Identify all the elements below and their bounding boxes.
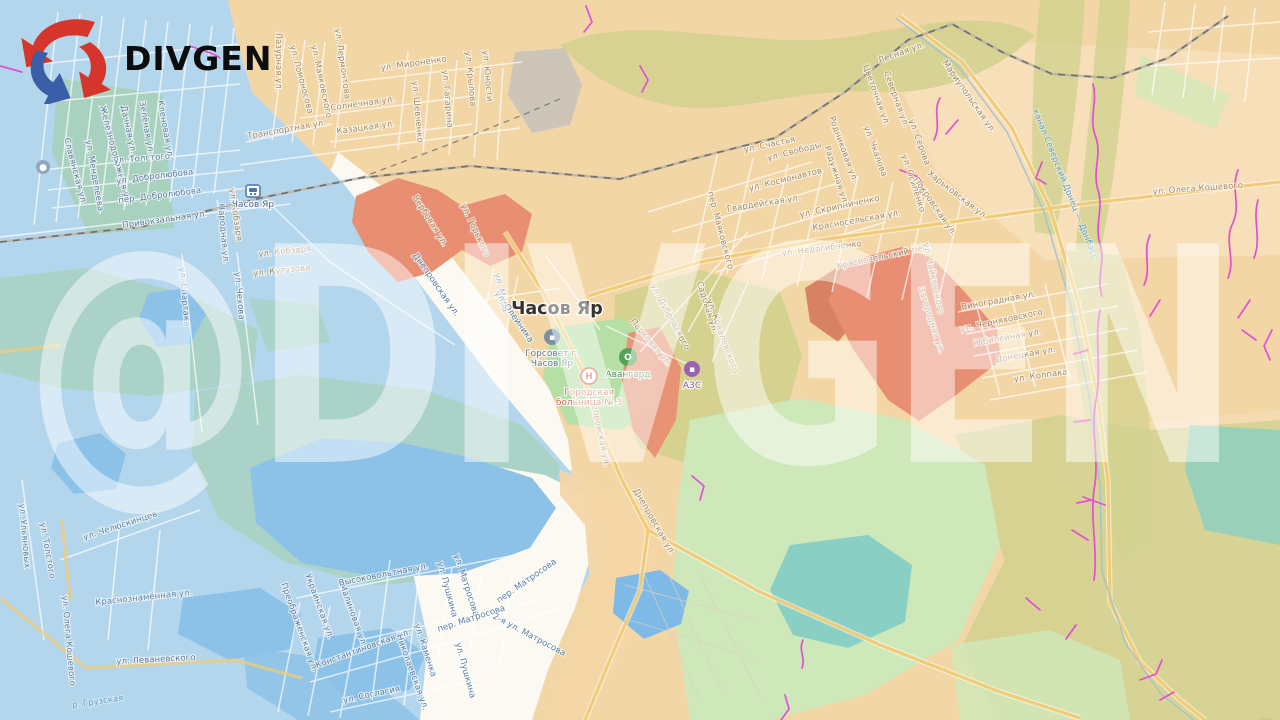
svg-text:●: ● <box>39 163 47 173</box>
street-label: Лазурная ул. <box>273 33 283 92</box>
divgen-logo-icon <box>14 12 114 104</box>
poi-park-poi: ● <box>36 160 50 174</box>
logo-arrow-blue <box>31 50 71 104</box>
divgen-logo: DIVGEN <box>14 12 272 104</box>
map-canvas[interactable]: Лазурная ул.ул. Ломоносоваул. Маяковског… <box>0 0 1280 720</box>
logo-arrow-red-right <box>79 42 111 98</box>
divgen-logo-text: DIVGEN <box>124 39 272 78</box>
watermark-text: @DIVGEN <box>24 184 1235 533</box>
map-screenshot: Лазурная ул.ул. Ломоносоваул. Маяковског… <box>0 0 1280 720</box>
